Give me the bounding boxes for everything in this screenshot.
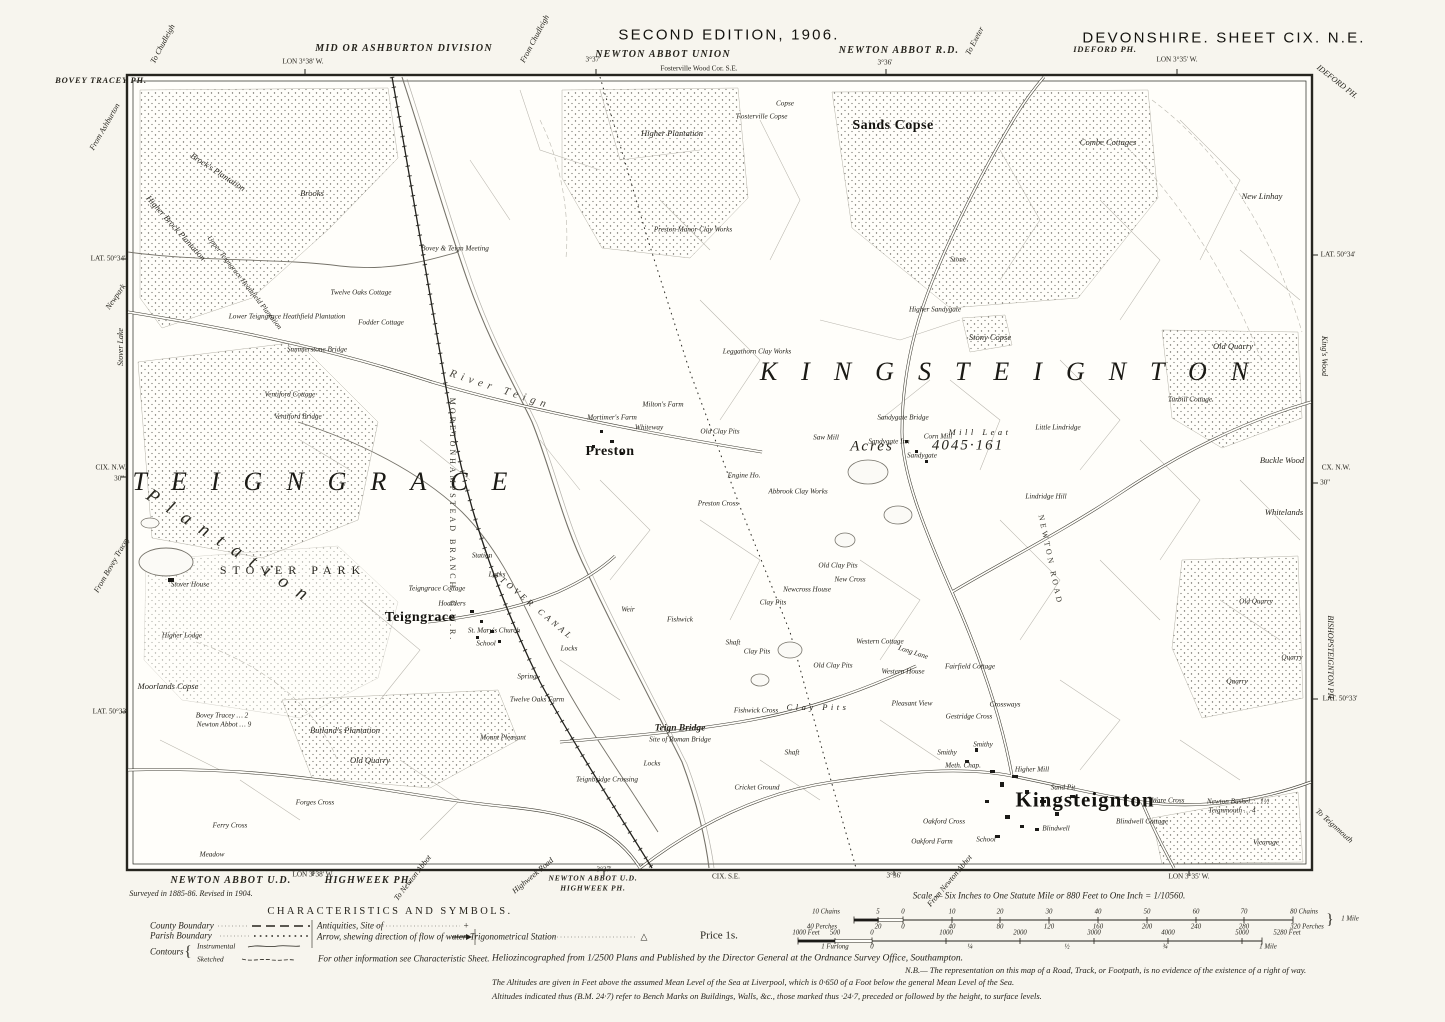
map-label: Quarry <box>1281 654 1302 661</box>
margin-label: Newpark <box>104 283 127 311</box>
map-label: St. Mary's Church <box>468 627 520 634</box>
legend-label: Arrow, shewing direction of flow of wate… <box>317 933 466 942</box>
map-label: Old Quarry <box>1239 598 1273 605</box>
margin-label: HIGHWEEK PH. <box>560 884 625 892</box>
map-label: Leggathorn Clay Works <box>723 348 791 355</box>
margin-label: NEWTON ABBOT U.D. <box>171 876 292 886</box>
map-label: New Linhay <box>1242 192 1283 201</box>
scale-label: 1000 Feet <box>792 931 819 938</box>
map-label: Bovey & Teign Meeting <box>421 245 489 252</box>
map-label: Shaft <box>726 639 741 646</box>
margin-label: LAT. 50°33' <box>1323 695 1358 702</box>
map-label: Hoarders <box>438 600 465 607</box>
map-label: Fishwick <box>667 616 693 623</box>
map-label: Stone <box>950 256 966 263</box>
map-label: Fishwick Cross <box>734 707 778 714</box>
map-label: Teign Bridge <box>655 724 706 734</box>
map-label: Forges Cross <box>296 799 334 806</box>
map-label: Lower Teigngrace Heathfield Plantation <box>229 313 346 320</box>
margin-label: LON 3°38' W. <box>282 58 323 65</box>
margin-label: Surveyed in 1885-86. Revised in 1904. <box>129 890 252 898</box>
scale-title: Scale — Six Inches to One Statute Mile o… <box>913 892 1186 901</box>
map-label: Meadow <box>200 851 225 858</box>
map-label: Butland's Plantation <box>310 726 380 735</box>
margin-label: To Teignmouth <box>1314 807 1354 845</box>
label-preston: Preston <box>585 445 634 459</box>
map-label: Quarry <box>1226 678 1247 685</box>
map-label: Engine Ho. <box>728 472 761 479</box>
scale-label: 4000 <box>1161 931 1175 938</box>
scale-label: 10 <box>949 910 956 917</box>
scale-label: 20 <box>875 925 882 932</box>
margin-label: CX. N.W. <box>1322 464 1351 471</box>
map-label: Twelve Oaks Farm <box>510 696 564 703</box>
map-label: Summerstone Bridge <box>287 346 347 353</box>
map-label: Whiteway <box>635 424 663 431</box>
map-label: Smithy <box>973 741 993 748</box>
map-label: Newcross House <box>783 586 831 593</box>
map-label: Sandygate <box>907 452 937 459</box>
map-label: Clay Pits <box>787 703 850 712</box>
scale-label: 1 Furlong <box>821 945 848 952</box>
map-label: Old Quarry <box>350 756 390 765</box>
map-label: Whitelands <box>1265 508 1303 517</box>
scale-label: 0 <box>901 910 904 917</box>
map-label: Spring <box>517 673 536 680</box>
map-label: Ware Cross <box>1152 797 1185 804</box>
legend-label: { <box>184 945 191 960</box>
map-label: Fairfield Cottage <box>945 663 995 670</box>
map-label: Brooks <box>300 189 324 198</box>
map-label: Moorlands Copse <box>138 682 199 691</box>
margin-label: LAT. 50°33' <box>93 708 128 715</box>
scale-label: 2000 <box>1013 931 1027 938</box>
scale-label: 120 <box>1044 925 1054 932</box>
label-kingsteignton-village: Kingsteignton <box>1015 790 1154 811</box>
margin-label: LON 3°35' W. <box>1156 56 1197 63</box>
map-label: New Cross <box>834 576 865 583</box>
map-label: Preston Cross <box>698 500 738 507</box>
map-label: Western Cottage <box>856 638 903 645</box>
margin-label: Stover Lake <box>117 328 125 366</box>
map-label: Higher Brock Plantation <box>145 194 208 262</box>
scale-label: 0 <box>870 945 873 952</box>
altitude-note-1: The Altitudes are given in Feet above th… <box>492 978 1014 987</box>
map-label: Mortimer's Farm <box>587 414 637 421</box>
margin-label: CIX. S.E. <box>712 873 740 880</box>
map-label: Oakford Cross <box>923 818 965 825</box>
margin-label: BISHOPSTEIGNTON PH. <box>1326 615 1334 700</box>
scale-label: 50 <box>1144 910 1151 917</box>
label-teigngrace-village: Teigngrace <box>385 611 456 625</box>
map-label: Stony Copse <box>969 333 1011 342</box>
map-label: Combe Cottages <box>1080 138 1136 147</box>
map-label: 4045·161 <box>932 439 1004 454</box>
scale-label: 0 <box>901 925 904 932</box>
map-label: Mount Pleasant <box>480 734 526 741</box>
scale-label: 40 <box>1095 910 1102 917</box>
scale-label: 20 <box>997 910 1004 917</box>
map-label: Old Clay Pits <box>818 562 857 569</box>
margin-label: From Ashburton <box>88 102 121 152</box>
map-label: Sandygate Bridge <box>877 414 928 421</box>
margin-label: IDEFORD PH. <box>1315 64 1359 101</box>
scale-label: 200 <box>1142 925 1152 932</box>
map-label: Higher Lodge <box>162 632 202 639</box>
map-label: Twelve Oaks Cottage <box>331 289 392 296</box>
price-label: Price 1s. <box>700 931 738 942</box>
margin-label: LAT. 50°34' <box>1321 251 1356 258</box>
scale-label: 5000 <box>1235 931 1249 938</box>
margin-label: From Chudleigh <box>519 14 551 64</box>
map-label: Teignbridge Crossing <box>576 776 638 783</box>
edition-title: SECOND EDITION, 1906. <box>618 28 839 43</box>
map-label: School <box>976 836 996 843</box>
map-label: Higher Mill <box>1015 766 1049 773</box>
scale-label: 3000 <box>1087 931 1101 938</box>
map-label: Oakford Farm <box>911 838 952 845</box>
map-label: Buckle Wood <box>1260 456 1304 465</box>
scale-label: 80 Chains <box>1290 910 1318 917</box>
map-label: Western House <box>881 668 924 675</box>
scale-label: 10 Chains <box>812 910 840 917</box>
map-label: Teigngrace Cottage <box>409 585 466 592</box>
map-label: Blindwell Cottage <box>1116 818 1168 825</box>
margin-label: 30'' <box>114 475 124 482</box>
margin-label: NEWTON ABBOT R.D. <box>839 46 959 56</box>
scale-label: 1 Mile <box>1341 917 1359 924</box>
legend-title: CHARACTERISTICS AND SYMBOLS. <box>267 907 512 918</box>
map-label: Old Clay Pits <box>700 428 739 435</box>
label-stover-park: STOVER PARK <box>220 564 366 576</box>
map-label: Blindwell <box>1042 825 1070 832</box>
map-label: Vicarage <box>1253 839 1279 846</box>
map-label: Higher Plantation <box>641 129 703 138</box>
map-label: Ventiford Cottage <box>265 391 316 398</box>
map-label: Copse <box>776 100 794 107</box>
map-label: Old Quarry <box>1213 342 1253 351</box>
map-label: Mill Leat <box>949 428 1012 437</box>
map-label: Fodder Cottage <box>358 319 404 326</box>
publication-note: Heliozincographed from 1/2500 Plans and … <box>492 954 963 964</box>
map-label: NEWTON ROAD <box>1037 514 1064 606</box>
altitude-note-2: Altitudes indicated thus (B.M. 24·7) ref… <box>492 992 1042 1001</box>
scale-label: ¾ <box>1162 945 1167 952</box>
map-label: Saw Mill <box>813 434 839 441</box>
margin-label: King's Wood <box>1320 336 1328 376</box>
legend-label: Sketched <box>197 955 224 963</box>
legend-label: For other information see Characteristic… <box>318 955 489 964</box>
scale-label: ½ <box>1064 945 1069 952</box>
map-label: Preston Manor Clay Works <box>654 226 732 233</box>
map-label: Locks <box>644 760 661 767</box>
legend-label: + <box>463 922 469 931</box>
map-label: School <box>476 640 496 647</box>
map-label: Teignmouth … 4 <box>1208 807 1255 814</box>
map-label: Fosterville Copse <box>737 113 788 120</box>
rights-of-way-note: N.B.— The representation on this map of … <box>905 966 1306 975</box>
margin-label: To Chudleigh <box>149 23 176 65</box>
scale-label: } <box>1326 913 1333 928</box>
map-label: Abbrook Clay Works <box>768 488 827 495</box>
legend-label: Contours <box>150 948 184 957</box>
legend-label: County Boundary <box>150 922 214 931</box>
scale-label: 1000 <box>939 931 953 938</box>
scale-label: 60 <box>1193 910 1200 917</box>
map-label: Weir <box>621 606 634 613</box>
map-label: Turbill Cottage <box>1168 396 1212 403</box>
map-label: Smithy <box>937 749 957 756</box>
map-label: Meth. Chap. <box>945 762 981 769</box>
legend-label: Trigonometrical Station <box>470 933 556 942</box>
margin-label: 30'' <box>1320 479 1330 486</box>
scale-label: 240 <box>1191 925 1201 932</box>
map-label: Lindridge Hill <box>1025 493 1066 500</box>
map-label: Old Clay Pits <box>813 662 852 669</box>
map-label: Long Lane <box>897 645 929 661</box>
legend-label: △ <box>641 933 648 942</box>
sheet-title: DEVONSHIRE. SHEET CIX. N.E. <box>1082 31 1365 46</box>
map-label: Milton's Farm <box>642 401 683 408</box>
map-label: Clay Pits <box>744 648 771 655</box>
legend-label: Parish Boundary <box>150 932 212 941</box>
map-label: Higher Sandygate <box>909 306 961 313</box>
scale-label: 5280 Feet <box>1273 931 1300 938</box>
margin-label: LAT. 50°34' <box>91 255 126 262</box>
legend-label: Antiquities, Site of <box>317 922 383 931</box>
map-label: Acres <box>850 440 894 455</box>
map-label: Bovey Tracey … 2 <box>196 712 249 719</box>
map-label: Crossways <box>990 701 1021 708</box>
margin-label: CIX. N.W. <box>96 464 127 471</box>
map-label: Gestridge Cross <box>946 713 993 720</box>
map-label: Station <box>472 552 492 559</box>
margin-label: NEWTON ABBOT UNION <box>595 50 731 60</box>
scale-label: 0 <box>870 931 873 938</box>
map-label: Newton Bushel … 1½ <box>1207 798 1269 805</box>
scale-label: 80 <box>997 925 1004 932</box>
margin-label: From Bovey Tracey <box>93 536 131 594</box>
margin-label: To Exeter <box>964 26 985 57</box>
margin-label: NEWTON ABBOT U.D. <box>548 874 637 882</box>
margin-label: Fosterville Wood Cor. S.E. <box>660 65 737 72</box>
margin-label: MID OR ASHBURTON DIVISION <box>315 44 493 54</box>
map-sheet: BOVEY TRACEY PH.To ChudleighLON 3°38' W.… <box>0 0 1445 1022</box>
margin-label: LON 3°35' W. <box>1168 873 1209 880</box>
scale-label: ¼ <box>967 945 972 952</box>
map-label: Cricket Ground <box>734 784 779 791</box>
map-label: Newton Abbot … 9 <box>197 721 251 728</box>
scale-label: 5 <box>876 910 879 917</box>
margin-label: 3°37' <box>597 866 612 873</box>
map-label: Shaft <box>785 749 800 756</box>
margin-label: 3°36' <box>887 872 902 879</box>
map-label: Plantation <box>143 486 321 611</box>
scale-label: 500 <box>830 931 840 938</box>
margin-label: 3°36' <box>878 59 893 66</box>
parish-name-teigngrace: TEIGNGRACE <box>133 469 532 495</box>
map-label: Pleasant View <box>892 700 933 707</box>
scale-label: 70 <box>1241 910 1248 917</box>
map-label: Stover House <box>171 581 210 588</box>
parish-name-kingsteignton: KINGSTEIGNTON <box>760 359 1272 385</box>
map-label: Clay Pits <box>760 599 787 606</box>
margin-label: BOVEY TRACEY PH. <box>55 76 147 85</box>
map-label: Brock's Plantation <box>189 151 247 193</box>
map-label: Ferry Cross <box>213 822 248 829</box>
map-label: Locks <box>561 645 578 652</box>
scale-label: 30 <box>1046 910 1053 917</box>
river-teign-label: River Teign <box>448 368 552 411</box>
label-sands-copse: Sands Copse <box>852 119 933 133</box>
legend-label: Instrumental <box>197 942 235 950</box>
label-layer: BOVEY TRACEY PH.To ChudleighLON 3°38' W.… <box>0 0 1445 1022</box>
map-label: Site of Roman Bridge <box>649 736 711 743</box>
scale-label: 1 Mile <box>1259 945 1277 952</box>
map-label: Little Lindridge <box>1035 424 1080 431</box>
map-label: Ventiford Bridge <box>274 413 321 420</box>
